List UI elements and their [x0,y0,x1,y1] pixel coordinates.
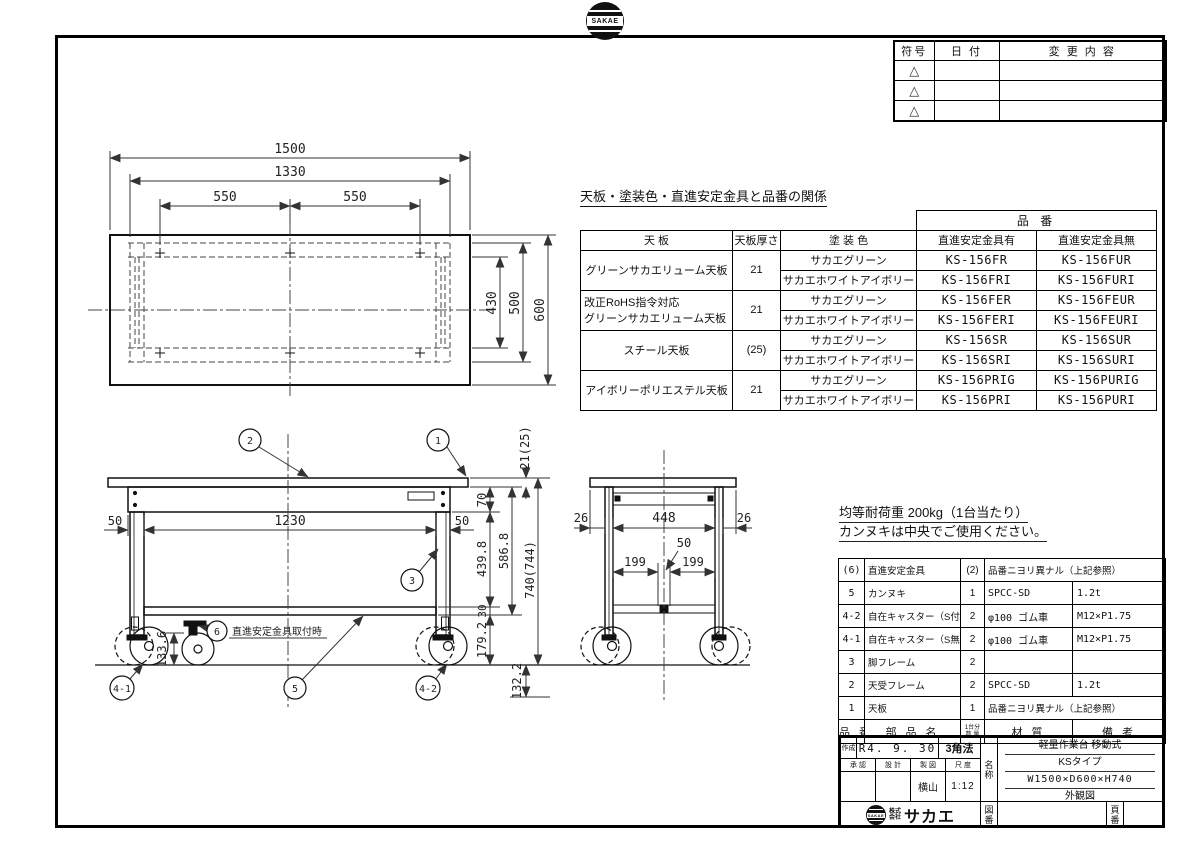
part-name: 自在キャスター（S付） [865,605,961,628]
designed-value [875,771,911,802]
parts-table: (6) 直進安定金具 (2) 品番ニヨリ異ナル（上記参照） 5 カンヌキ 1 S… [838,558,1166,744]
part-no: (6) [839,559,865,582]
spec-cell-partno: KS-156SR [917,330,1037,350]
spec-cell-paint: サカエホワイトアイボリー [781,310,917,330]
elevation-drawings: 50 1230 50 133.6 21(25) 70 439.8 30 179.… [60,420,760,720]
drawn-by: 横山 [910,771,946,802]
balloon-number: 3 [409,576,415,587]
company-logo-cell: SAKAE 株式 会社 サカエ [840,801,981,828]
dim-label: 1330 [274,165,305,180]
revision-triangle-icon: △ [894,81,934,101]
part-name: 天板 [865,697,961,720]
spec-tenban-line1: 改正RoHS指令対応 [584,294,732,310]
drawn-label: 製 図 [910,758,946,772]
part-remarks: 1.2t [1073,674,1166,697]
spec-table: 品 番 天 板 天板厚さ 塗 装 色 直進安定金具有 直進安定金具無 グリーンサ… [580,210,1157,411]
note-load-capacity: 均等耐荷重 200kg（1台当たり） [839,504,1028,523]
note-kannuki-usage: カンヌキは中央でご使用ください。 [839,523,1047,542]
part-no: 3 [839,651,865,674]
badge-band: SAKAE [587,16,623,26]
part-no: 1 [839,697,865,720]
part-material: SPCC-SD [985,582,1073,605]
drawing-no-char1: 図 [984,805,993,815]
part-qty: 2 [961,628,985,651]
spec-cell-partno: KS-156PRI [917,390,1037,410]
revision-header-content: 変 更 内 容 [999,41,1166,61]
spec-cell-partno: KS-156SUR [1037,330,1157,350]
part-remarks [1073,651,1166,674]
spec-cell-partno: KS-156FEURI [1037,310,1157,330]
dim-label: 199 [624,555,646,569]
spec-header-paint: 塗 装 色 [781,230,917,250]
plan-view-drawing: 1500 1330 550 550 430 500 600 [60,125,560,405]
product-name-area: 軽量作業台 移動式 KSタイプ W1500×D600×H740 外観図 [997,737,1163,802]
part-qty: 2 [961,605,985,628]
spec-tenban-line2: グリーンサカエリューム天板 [584,310,732,326]
part-remarks: M12×P1.75 [1073,628,1166,651]
dim-label: 550 [213,190,236,205]
spec-cell-tenban: スチール天板 [581,330,733,370]
spec-cell-thickness: (25) [733,330,781,370]
revision-content-cell [999,61,1166,81]
dim-label: 500 [508,291,523,314]
spec-cell-partno: KS-156SURI [1037,350,1157,370]
spec-header-with: 直進安定金具有 [917,230,1037,250]
dim-label: 30 [476,604,489,617]
scale-value: 1:12 [945,771,981,802]
part-material: φ100 ゴム車 [985,605,1073,628]
plan-extension-lines [110,151,556,385]
parts-header-qty-line1: 1台分 [961,725,984,732]
drawing-no-label: 図 番 [980,801,998,828]
badge-stripe [869,820,883,821]
dim-label: 550 [343,190,366,205]
part-qty: 2 [961,651,985,674]
balloon-number: 2 [247,436,253,447]
dim-label: 439.8 [475,541,489,577]
revision-date-cell [934,101,999,122]
spec-header-hinban: 品 番 [917,211,1157,231]
part-material: 品番ニヨリ異ナル（上記参照） [985,697,1166,720]
part-name: 天受フレーム [865,674,961,697]
balloon-number: 1 [435,436,441,447]
revision-header-date: 日 付 [934,41,999,61]
plan-centerlines [88,221,492,399]
spec-cell-partno: KS-156PRIG [917,370,1037,390]
product-line2: KSタイプ [1005,755,1155,772]
part-no: 4-2 [839,605,865,628]
part-name: カンヌキ [865,582,961,605]
approved-label: 承 認 [840,758,876,772]
spec-cell-paint: サカエグリーン [781,250,917,270]
revision-triangle-icon: △ [894,61,934,81]
notes: 均等耐荷重 200kg（1台当たり） カンヌキは中央でご使用ください。 [839,504,1047,542]
side-extension-lines [590,490,736,606]
spec-cell-paint: サカエグリーン [781,290,917,310]
spec-cell-thickness: 21 [733,370,781,410]
scale-label: 尺 度 [945,758,981,772]
sakae-logo-badge: SAKAE [586,2,624,40]
spec-cell-partno: KS-156FER [917,290,1037,310]
balloon-number: 4-2 [419,684,437,695]
badge-stripe [589,30,621,32]
spec-cell-partno: KS-156PURIG [1037,370,1157,390]
page-no-label: 頁 番 [1106,801,1124,828]
spec-cell-paint: サカエホワイトアイボリー [781,270,917,290]
revision-date-cell [934,81,999,101]
revision-triangle-icon: △ [894,101,934,122]
spec-spacer [581,211,917,231]
dim-label: 199 [682,555,704,569]
spec-cell-partno: KS-156PURI [1037,390,1157,410]
dim-label: 21(25) [518,426,532,469]
part-no: 2 [839,674,865,697]
spec-table-title: 天板・塗装色・直進安定金具と品番の関係 [580,186,827,207]
side-view-casters [581,627,750,665]
name-label-char2: 称 [984,770,993,780]
projection-method: 3角法 [938,737,981,759]
part-remarks: 1.2t [1073,582,1166,605]
part-material [985,651,1073,674]
badge-band: SAKAE [867,813,885,818]
badge-stripe [589,10,621,12]
part-remarks: M12×P1.75 [1073,605,1166,628]
spec-cell-partno: KS-156FRI [917,270,1037,290]
revision-content-cell [999,81,1166,101]
spec-cell-paint: サカエホワイトアイボリー [781,350,917,370]
dim-label: 26 [574,511,588,525]
part-material: 品番ニヨリ異ナル（上記参照） [985,559,1166,582]
spec-cell-partno: KS-156SRI [917,350,1037,370]
revision-date-cell [934,61,999,81]
spec-cell-tenban: 改正RoHS指令対応 グリーンサカエリューム天板 [581,290,733,330]
spec-cell-partno: KS-156FEUR [1037,290,1157,310]
dim-label: 1230 [274,514,305,529]
front-dimension-lines [104,466,538,697]
name-label-char1: 名 [984,760,993,770]
title-block: 作成 R4. 9. 30 3角法 承 認 設 計 製 図 尺 度 横山 1:12… [838,735,1165,828]
product-line3: W1500×D600×H740 [1005,772,1155,789]
spec-cell-thickness: 21 [733,250,781,290]
spec-header-without: 直進安定金具無 [1037,230,1157,250]
balloon-number: 5 [292,684,298,695]
side-dimension-lines [574,528,752,572]
company-prefix-line1: 株式 [889,809,901,815]
part-name: 直進安定金具 [865,559,961,582]
approved-value [840,771,876,802]
spec-cell-tenban: アイボリーポリエステル天板 [581,370,733,410]
plan-dimension-lines [110,158,548,385]
revision-table: 符号 日 付 変 更 内 容 △ △ △ [893,40,1167,122]
dim-label: 586.8 [497,533,511,569]
spec-cell-partno: KS-156FURI [1037,270,1157,290]
dim-label: 1500 [274,142,305,157]
dim-label: 132.2 [510,663,524,699]
spec-header-tenban: 天 板 [581,230,733,250]
part-name: 自在キャスター（S無） [865,628,961,651]
spec-header-thickness: 天板厚さ [733,230,781,250]
part-qty: 2 [961,674,985,697]
spec-cell-partno: KS-156FUR [1037,250,1157,270]
spec-cell-paint: サカエホワイトアイボリー [781,390,917,410]
company-prefix-line2: 会社 [889,815,901,821]
dim-label: 133.6 [155,631,169,667]
name-label: 名 称 [980,737,998,802]
company-prefix: 株式 会社 [889,809,901,821]
spec-cell-partno: KS-156FR [917,250,1037,270]
badge-text: SAKAE [591,18,618,25]
spec-cell-partno: KS-156FERI [917,310,1037,330]
sakae-logo-badge-small: SAKAE [866,805,886,825]
product-line1: 軽量作業台 移動式 [1005,738,1155,755]
part-qty: 1 [961,582,985,605]
drawing-sheet: SAKAE 符号 日 付 変 更 内 容 △ △ △ 天板・塗装色・直進安定金具… [0,0,1200,849]
drawing-no-value [997,801,1107,828]
dim-label: 448 [652,511,675,526]
part-qty: 1 [961,697,985,720]
part-no: 4-1 [839,628,865,651]
stabilizer-note: 直進安定金具取付時 [232,625,322,638]
part-qty: (2) [961,559,985,582]
part-no: 5 [839,582,865,605]
dim-label: 740(744) [523,541,537,599]
part-material: φ100 ゴム車 [985,628,1073,651]
dim-label: 50 [455,514,469,528]
dim-label: 179.2 [475,622,489,658]
balloon-number: 6 [214,627,220,638]
part-name: 脚フレーム [865,651,961,674]
designed-label: 設 計 [875,758,911,772]
created-label: 作成 [840,737,857,759]
dim-label: 26 [737,511,751,525]
badge-text: SAKAE [868,813,885,818]
spec-cell-thickness: 21 [733,290,781,330]
dim-label: 50 [108,514,122,528]
revision-header-symbol: 符号 [894,41,934,61]
page-no-char2: 番 [1110,815,1119,825]
plan-dimension-labels: 1500 1330 550 550 430 500 600 [213,142,548,322]
page-no-char1: 頁 [1110,805,1119,815]
side-dimension-labels: 26 448 26 50 199 199 [574,511,751,569]
drawing-no-char2: 番 [984,815,993,825]
spec-table-section: 天板・塗装色・直進安定金具と品番の関係 品 番 天 板 天板厚さ 塗 装 色 直… [580,186,1158,411]
spec-cell-tenban: グリーンサカエリューム天板 [581,250,733,290]
spec-cell-paint: サカエグリーン [781,330,917,350]
balloon-number: 4-1 [113,684,131,695]
revision-content-cell [999,101,1166,122]
spec-cell-paint: サカエグリーン [781,370,917,390]
dim-label: 70 [475,493,489,507]
page-no-value [1123,801,1163,828]
dim-label: 50 [677,536,691,550]
badge-stripe [869,809,883,810]
dim-label: 600 [533,298,548,321]
dim-label: 430 [485,291,500,314]
company-name: サカエ [904,803,955,827]
part-material: SPCC-SD [985,674,1073,697]
created-date: R4. 9. 30 [856,737,939,759]
